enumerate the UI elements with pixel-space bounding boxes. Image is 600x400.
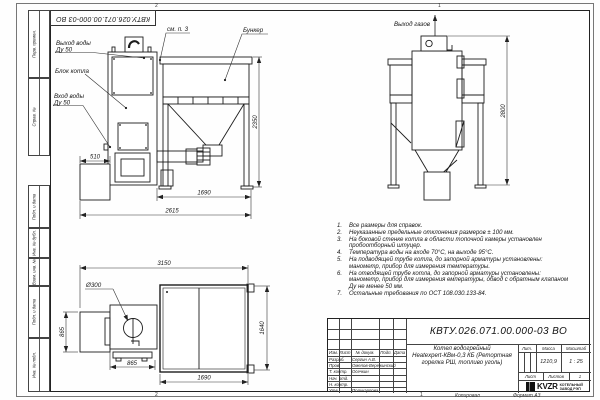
tb-header-izm: Изм.: [328, 349, 339, 356]
side-view-drawing: [388, 36, 486, 200]
copied-label: Копировал: [455, 393, 480, 399]
note-text: Все размеры для справок.: [349, 223, 569, 230]
dim-front-total-width: 2615: [164, 209, 179, 215]
tb-designation: КВТУ.026.071.00.000-03 ВО: [406, 319, 591, 344]
note-item: 7.Остальные требования по ОСТ 108.030.13…: [337, 291, 569, 298]
tb-name: Осечкин: [352, 369, 369, 374]
dim-plan-total-width: 3150: [157, 261, 171, 267]
company-logo: KVZR КОТЕЛЬНЫЙ ЗАВОД РЭП: [518, 380, 591, 393]
dim-plan-hopper-width: 1690: [197, 376, 211, 382]
dim-plan-left-depth: 865: [60, 326, 66, 337]
tb-scale-label: Масштаб: [561, 344, 591, 352]
note-item: 3.На боковой стенке котла в области топо…: [337, 237, 569, 251]
tb-name: Поликарпова: [352, 388, 378, 393]
tb-product-name-line3: горелка РШ, топливо уголь): [408, 360, 516, 367]
tb-product-name: Котел водогрейный Heatexpert-КВм-0,3 КБ …: [408, 346, 516, 367]
tb-name: Омелов-Вережинский: [352, 363, 396, 368]
tb-sheet-label: Лист: [518, 372, 543, 380]
note-text: Остальные требования по ОСТ 108.030.133-…: [349, 291, 569, 298]
tb-name: Сергин А.В.: [352, 357, 376, 362]
note-item: 6.На отводящей трубе котла, до запорной …: [337, 271, 569, 291]
note-number: 6.: [337, 271, 349, 291]
tb-role: Утв.: [329, 388, 339, 393]
tb-header-date: Дата: [393, 349, 406, 356]
note-text: На подводящей трубе котла, до запорной а…: [349, 257, 569, 271]
note-number: 3.: [337, 237, 349, 251]
plan-view-drawing: [80, 284, 254, 373]
front-view-drawing: [80, 37, 253, 200]
label-boiler-block: Блок котла: [55, 68, 89, 75]
kvzr-logo-icon: [526, 382, 535, 391]
tb-lit-label: Лит.: [518, 344, 536, 352]
label-see-note: см. п. 3: [167, 26, 189, 33]
label-gas-out: Выход газов: [394, 21, 431, 28]
label-hopper: Бункер: [243, 27, 264, 34]
tb-scale-value: 1 : 25: [561, 352, 591, 372]
note-item: 4.Температура воды на входе 70°С, на вых…: [337, 250, 569, 257]
note-text: На боковой стенке котла в области топочн…: [349, 237, 569, 251]
format-label: Формат А3: [513, 393, 540, 399]
tb-header-sign: Подп.: [379, 349, 393, 356]
tb-header-doc: № докум.: [351, 349, 379, 356]
dim-plan-boiler-width: 865: [127, 361, 138, 367]
note-number: 4.: [337, 250, 349, 257]
label-diameter: Ø300: [85, 282, 102, 289]
label-water-out-line2: Ду 50: [55, 47, 73, 54]
label-water-in-line2: Ду 50: [53, 100, 71, 107]
tb-mass-value: 1210,9: [536, 352, 561, 372]
note-number: 5.: [337, 257, 349, 271]
note-text: На отводящей трубе котла, до запорной ар…: [349, 271, 569, 291]
company-name-line1: КОТЕЛЬНЫЙ: [560, 383, 583, 387]
tb-mass-label: Масса: [536, 344, 561, 352]
note-item: 1.Все размеры для справок.: [337, 223, 569, 230]
note-item: 5.На подводящей трубе котла, до запорной…: [337, 257, 569, 271]
dim-front-height: 2350: [253, 115, 259, 130]
dim-front-hopper-width: 1690: [197, 191, 211, 197]
tb-sheets-value: 1: [569, 372, 591, 380]
tb-header-list: Лист: [339, 349, 351, 356]
note-number: 1.: [337, 223, 349, 230]
drawing-sheet: 2 1 2 1 КВТУ.026.071.00.000-03 ВО Перв. …: [0, 0, 600, 400]
note-number: 2.: [337, 230, 349, 237]
tb-role: Разраб.: [329, 357, 345, 362]
tb-product-name-line1: Котел водогрейный: [408, 346, 516, 353]
tb-role: Т. контр.: [329, 369, 348, 374]
tb-role: Н. контр.: [329, 382, 348, 387]
tb-sheets-label: Листов: [543, 372, 569, 380]
company-name: КОТЕЛЬНЫЙ ЗАВОД РЭП: [560, 383, 583, 391]
tb-role: Нач. отд.: [329, 376, 348, 381]
company-name-line2: ЗАВОД РЭП: [560, 387, 583, 391]
note-item: 2.Неуказанные предельные отклонения разм…: [337, 230, 569, 237]
dim-plan-right-depth: 1640: [260, 321, 266, 335]
note-text: Неуказанные предельные отклонения размер…: [349, 230, 569, 237]
note-number: 7.: [337, 291, 349, 298]
tb-role: Пров.: [329, 363, 340, 368]
note-text: Температура воды на входе 70°С, на выход…: [349, 250, 569, 257]
kvzr-logo-text: KVZR: [537, 382, 558, 391]
dim-front-base: 510: [90, 155, 101, 161]
tb-product-name-line2: Heatexpert-КВм-0,3 КБ (Ретортная: [408, 353, 516, 360]
title-block: Изм. Лист № докум. Подп. Дата Разраб. Се…: [327, 318, 590, 392]
dim-side-height: 2800: [501, 104, 507, 119]
technical-notes: 1.Все размеры для справок. 2.Неуказанные…: [337, 223, 569, 298]
